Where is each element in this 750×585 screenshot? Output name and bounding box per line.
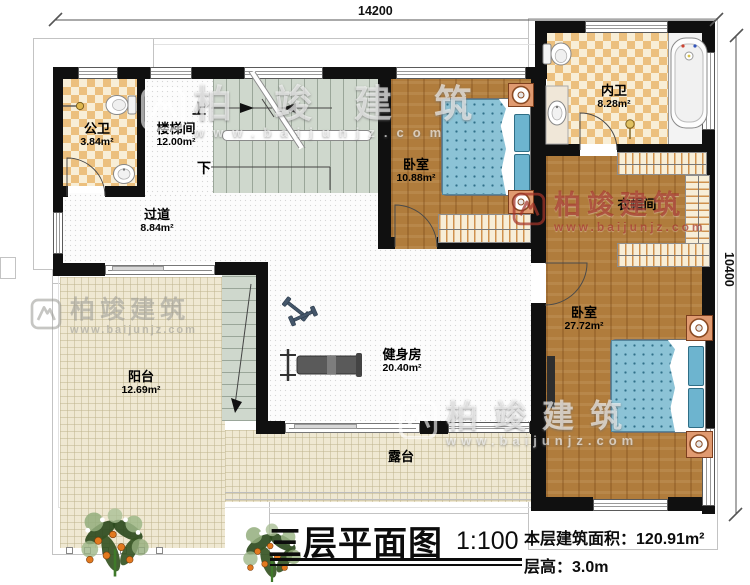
sliding-door	[285, 423, 420, 433]
title-underline	[270, 558, 522, 561]
blanket	[442, 99, 508, 195]
room-label-small-bedroom: 卧室 10.88m²	[396, 158, 435, 184]
wall	[668, 21, 702, 33]
room-label-public-bath: 公卫 3.84m²	[80, 122, 113, 148]
pillow	[514, 154, 530, 192]
room-label-corridor: 过道 8.84m²	[140, 208, 173, 234]
wall	[535, 21, 585, 33]
wall	[531, 303, 546, 503]
wall	[53, 263, 105, 276]
bathtub-platform	[668, 33, 703, 144]
nightstand	[686, 431, 713, 458]
wall	[378, 237, 395, 249]
tv-icon	[547, 356, 555, 408]
floor-height-info: 层高：3.0m	[524, 553, 608, 577]
room-label-cloakroom: 衣帽间	[617, 198, 656, 213]
wall	[118, 67, 150, 79]
wall	[215, 262, 268, 275]
wall	[531, 497, 593, 511]
floor-area-info: 本层建筑面积：120.91m²	[524, 525, 705, 549]
left-edge-tab	[0, 257, 16, 279]
railing-post	[156, 547, 163, 554]
window	[448, 422, 530, 433]
cloakroom-rack-bottom	[617, 243, 710, 267]
stair-handrail	[222, 130, 372, 141]
terrace-edge-line2	[225, 499, 535, 500]
room-label-balcony: 阳台 12.69m²	[121, 370, 160, 396]
sliding-door	[105, 265, 215, 275]
bed-master-bedroom	[610, 339, 706, 433]
room-label-master-bedroom: 卧室 27.72m²	[564, 306, 603, 332]
room-label-stairwell: 楼梯间 12.00m²	[156, 122, 195, 148]
floor-plan: 公卫 3.84m² 楼梯间 12.00m² 上 下 过道 8.84m² 卧室 1…	[0, 0, 750, 585]
terrace-stair-treads	[222, 275, 258, 421]
dimension-right-value: 10400	[722, 252, 736, 287]
wall	[256, 421, 285, 434]
railing-post	[84, 547, 91, 554]
stair-up-label: 上	[192, 99, 206, 119]
gym-floor	[268, 263, 531, 421]
window	[150, 67, 192, 79]
wall	[105, 186, 145, 197]
wall	[53, 186, 68, 197]
plan-scale: 1:100	[456, 527, 519, 556]
railing-post	[66, 547, 73, 554]
room-label-terrace: 露台	[388, 450, 414, 465]
railing-post	[138, 547, 145, 554]
wall	[420, 421, 448, 434]
pillow	[514, 114, 530, 152]
wall	[378, 79, 391, 249]
wall	[256, 275, 268, 423]
nightstand	[508, 190, 534, 214]
wall	[535, 144, 580, 156]
blanket	[611, 340, 677, 432]
dimension-top-value: 14200	[358, 4, 393, 18]
cloakroom-rack-top	[617, 152, 707, 175]
wall	[531, 249, 546, 263]
pillow	[688, 346, 704, 386]
wall	[192, 67, 244, 79]
wall	[323, 67, 396, 79]
cloakroom-rack-right	[685, 175, 710, 247]
window	[702, 52, 715, 130]
window	[396, 67, 526, 79]
window	[593, 499, 668, 511]
pillow	[688, 388, 704, 428]
railing-post	[102, 547, 109, 554]
wardrobe-rack	[438, 214, 531, 243]
balcony-floor	[60, 277, 225, 548]
nightstand	[508, 83, 534, 107]
wall	[702, 21, 715, 52]
wall	[137, 79, 145, 186]
bed-small-bedroom	[441, 98, 531, 196]
stair-down-label: 下	[197, 158, 211, 178]
terrace-edge-line	[225, 492, 535, 493]
window	[244, 67, 323, 79]
room-label-gym: 健身房 20.40m²	[382, 348, 421, 374]
window	[585, 21, 668, 33]
room-label-inner-bath: 内卫 8.28m²	[597, 84, 630, 110]
title-underline2	[270, 564, 522, 566]
railing-post	[120, 547, 127, 554]
window	[78, 67, 118, 79]
nightstand	[686, 315, 713, 341]
window	[53, 212, 63, 254]
